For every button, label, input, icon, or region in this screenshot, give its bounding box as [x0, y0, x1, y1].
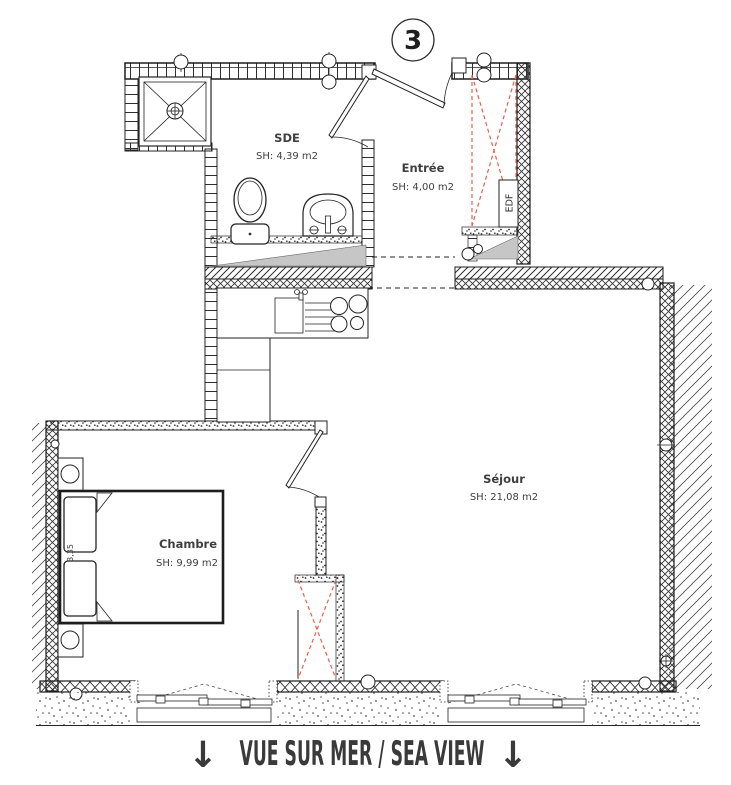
riser-symbol [642, 278, 654, 290]
window-sliding-panel [514, 699, 586, 705]
window-jamb [440, 681, 448, 702]
kitchen-sink [275, 298, 303, 333]
toilet-button [249, 233, 252, 236]
riser-symbol [474, 245, 483, 254]
riser-symbol [322, 54, 336, 68]
wall-sde-bottom-hatch [205, 267, 372, 279]
window-handle [156, 696, 165, 703]
room-name-sde: SDE [274, 131, 300, 145]
wall-sejour-top-hatch [455, 267, 663, 279]
window-chambre [130, 681, 277, 722]
window-sliding-panel [448, 695, 520, 701]
sea-view-arrow-left: ↓ [188, 735, 218, 776]
window-sliding-panel [137, 695, 207, 701]
entrance-door-swing-arc [444, 73, 452, 106]
wall-sejour-top-cross [455, 279, 663, 289]
riser-symbol [361, 675, 375, 689]
wall-closet-entree-bottom [462, 227, 518, 235]
slope-triangle-sde [212, 245, 366, 266]
kitchen-faucet-stem [299, 293, 303, 300]
sea-view-caption: VUE SUR MER / SEA VIEW [240, 734, 485, 774]
wall-sde-left [205, 149, 217, 267]
balcony-threshold [137, 708, 271, 722]
room-area-entree: SH: 4,00 m2 [392, 182, 454, 193]
kitchen [217, 288, 368, 422]
party-wall-hatching [32, 285, 712, 689]
bed-dimension-label: 3,35 [66, 544, 75, 562]
chambre-door-swing-arc [288, 487, 319, 497]
stove-burner [331, 298, 348, 315]
unit-badge-number: 3 [404, 26, 422, 56]
riser-symbol [322, 75, 336, 89]
window-handle [241, 700, 250, 707]
wall-bottom-left [40, 681, 135, 692]
riser-symbol [477, 68, 491, 82]
balcony-threshold [448, 708, 584, 722]
riser-symbol [174, 55, 188, 69]
wall-bottom-right [592, 681, 676, 692]
edf-panel-label: EDF [505, 194, 516, 213]
passage-dashed-lines [368, 257, 456, 288]
floor-plan-drawing: 3,35 EDF [0, 0, 731, 785]
window-handle [553, 700, 562, 707]
room-name-sejour: Séjour [483, 472, 525, 486]
floor-plan-page: 3,35 EDF [0, 0, 731, 785]
wall-left-chambre [46, 421, 58, 691]
bathroom-fixtures [139, 77, 353, 244]
room-name-chambre: Chambre [159, 537, 217, 551]
wall-shower-left [125, 79, 138, 150]
balcony-stipple [36, 692, 130, 725]
wall-chambre-top [46, 421, 317, 430]
wall-kitchen [205, 289, 217, 421]
riser-symbol [639, 677, 651, 689]
window-handle [510, 698, 519, 705]
sink-faucet [326, 216, 331, 233]
window-handle [465, 696, 474, 703]
riser-symbol [462, 248, 474, 260]
room-name-entree: Entrée [402, 161, 445, 175]
wall-right-sejour [660, 283, 674, 691]
sea-view-arrow-right: ↓ [498, 735, 528, 776]
riser-symbol [477, 53, 491, 67]
window-sliding-panel [203, 699, 272, 705]
wall-closet-chambre-right [336, 575, 344, 681]
stove-burner [331, 316, 347, 332]
door-jamb [315, 497, 326, 507]
balcony-stipple [592, 692, 700, 725]
pillow [64, 561, 96, 616]
door-jamb [452, 58, 466, 73]
window-handle [199, 698, 208, 705]
right-party-hatch [669, 285, 712, 689]
wall-bottom-middle [277, 681, 443, 692]
wall-chambre-stub [316, 499, 326, 575]
unit-badge: 3 [392, 19, 434, 61]
room-area-chambre: SH: 9,99 m2 [156, 558, 218, 569]
entrance-door-leaf [372, 69, 445, 108]
stove-burner [351, 317, 364, 330]
wall-right-entree [517, 63, 530, 264]
kitchen-cabinet-column [217, 338, 270, 422]
stove-burner [349, 295, 367, 313]
riser-symbol [51, 440, 59, 448]
left-party-hatch [32, 423, 46, 689]
room-area-sejour: SH: 21,08 m2 [470, 492, 538, 503]
pillow [64, 497, 96, 552]
footer: ↓ VUE SUR MER / SEA VIEW ↓ [188, 734, 528, 776]
window-sejour [440, 681, 592, 722]
room-area-sde: SH: 4,39 m2 [256, 151, 318, 162]
chambre-door-leaf [286, 430, 323, 488]
balcony-stipple [277, 692, 440, 725]
